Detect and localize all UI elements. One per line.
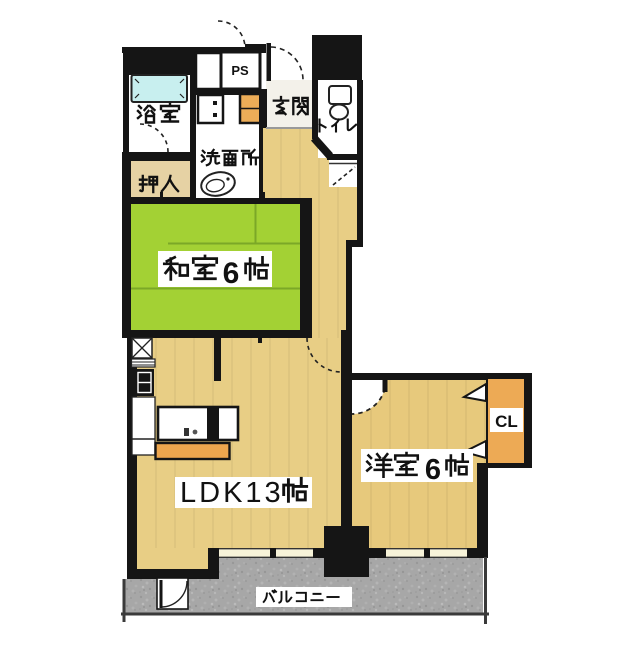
svg-text:LDK13: LDK13 xyxy=(180,477,284,509)
svg-text:6: 6 xyxy=(223,257,240,290)
svg-text:6: 6 xyxy=(425,454,441,486)
svg-text:CL: CL xyxy=(495,412,518,431)
svg-text:PS: PS xyxy=(231,63,249,78)
